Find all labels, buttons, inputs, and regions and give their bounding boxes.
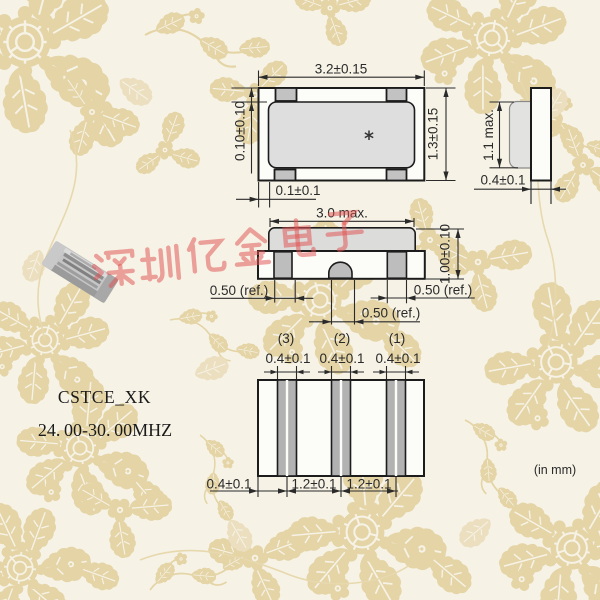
svg-text:0.10±0.10: 0.10±0.10: [233, 101, 248, 161]
svg-text:1.1 max.: 1.1 max.: [481, 109, 496, 161]
svg-text:0.4±0.1: 0.4±0.1: [320, 351, 365, 366]
svg-text:1.2±0.1: 1.2±0.1: [347, 477, 392, 492]
svg-text:0.1±0.1: 0.1±0.1: [276, 183, 321, 198]
svg-text:0.50 (ref.): 0.50 (ref.): [414, 283, 473, 298]
svg-text:0.50 (ref.): 0.50 (ref.): [362, 306, 421, 321]
svg-text:1.3±0.15: 1.3±0.15: [426, 108, 441, 160]
svg-text:0.4±0.1: 0.4±0.1: [266, 351, 311, 366]
svg-text:(1): (1): [389, 331, 406, 346]
svg-text:0.4±0.1: 0.4±0.1: [481, 173, 526, 188]
svg-text:24. 00-30. 00MHZ: 24. 00-30. 00MHZ: [38, 420, 172, 440]
svg-text:3.2±0.15: 3.2±0.15: [315, 62, 367, 77]
svg-text:(3): (3): [278, 331, 295, 346]
svg-text:1.2±0.1: 1.2±0.1: [292, 477, 337, 492]
svg-text:0.4±0.1: 0.4±0.1: [376, 351, 421, 366]
svg-text:0.4±0.1: 0.4±0.1: [207, 477, 252, 492]
svg-text:CSTCE_XK: CSTCE_XK: [58, 387, 151, 407]
svg-text:1.00±0.10: 1.00±0.10: [438, 224, 453, 284]
svg-text:(in mm): (in mm): [534, 463, 576, 477]
svg-text:(2): (2): [334, 331, 351, 346]
svg-text:0.50 (ref.): 0.50 (ref.): [210, 283, 269, 298]
